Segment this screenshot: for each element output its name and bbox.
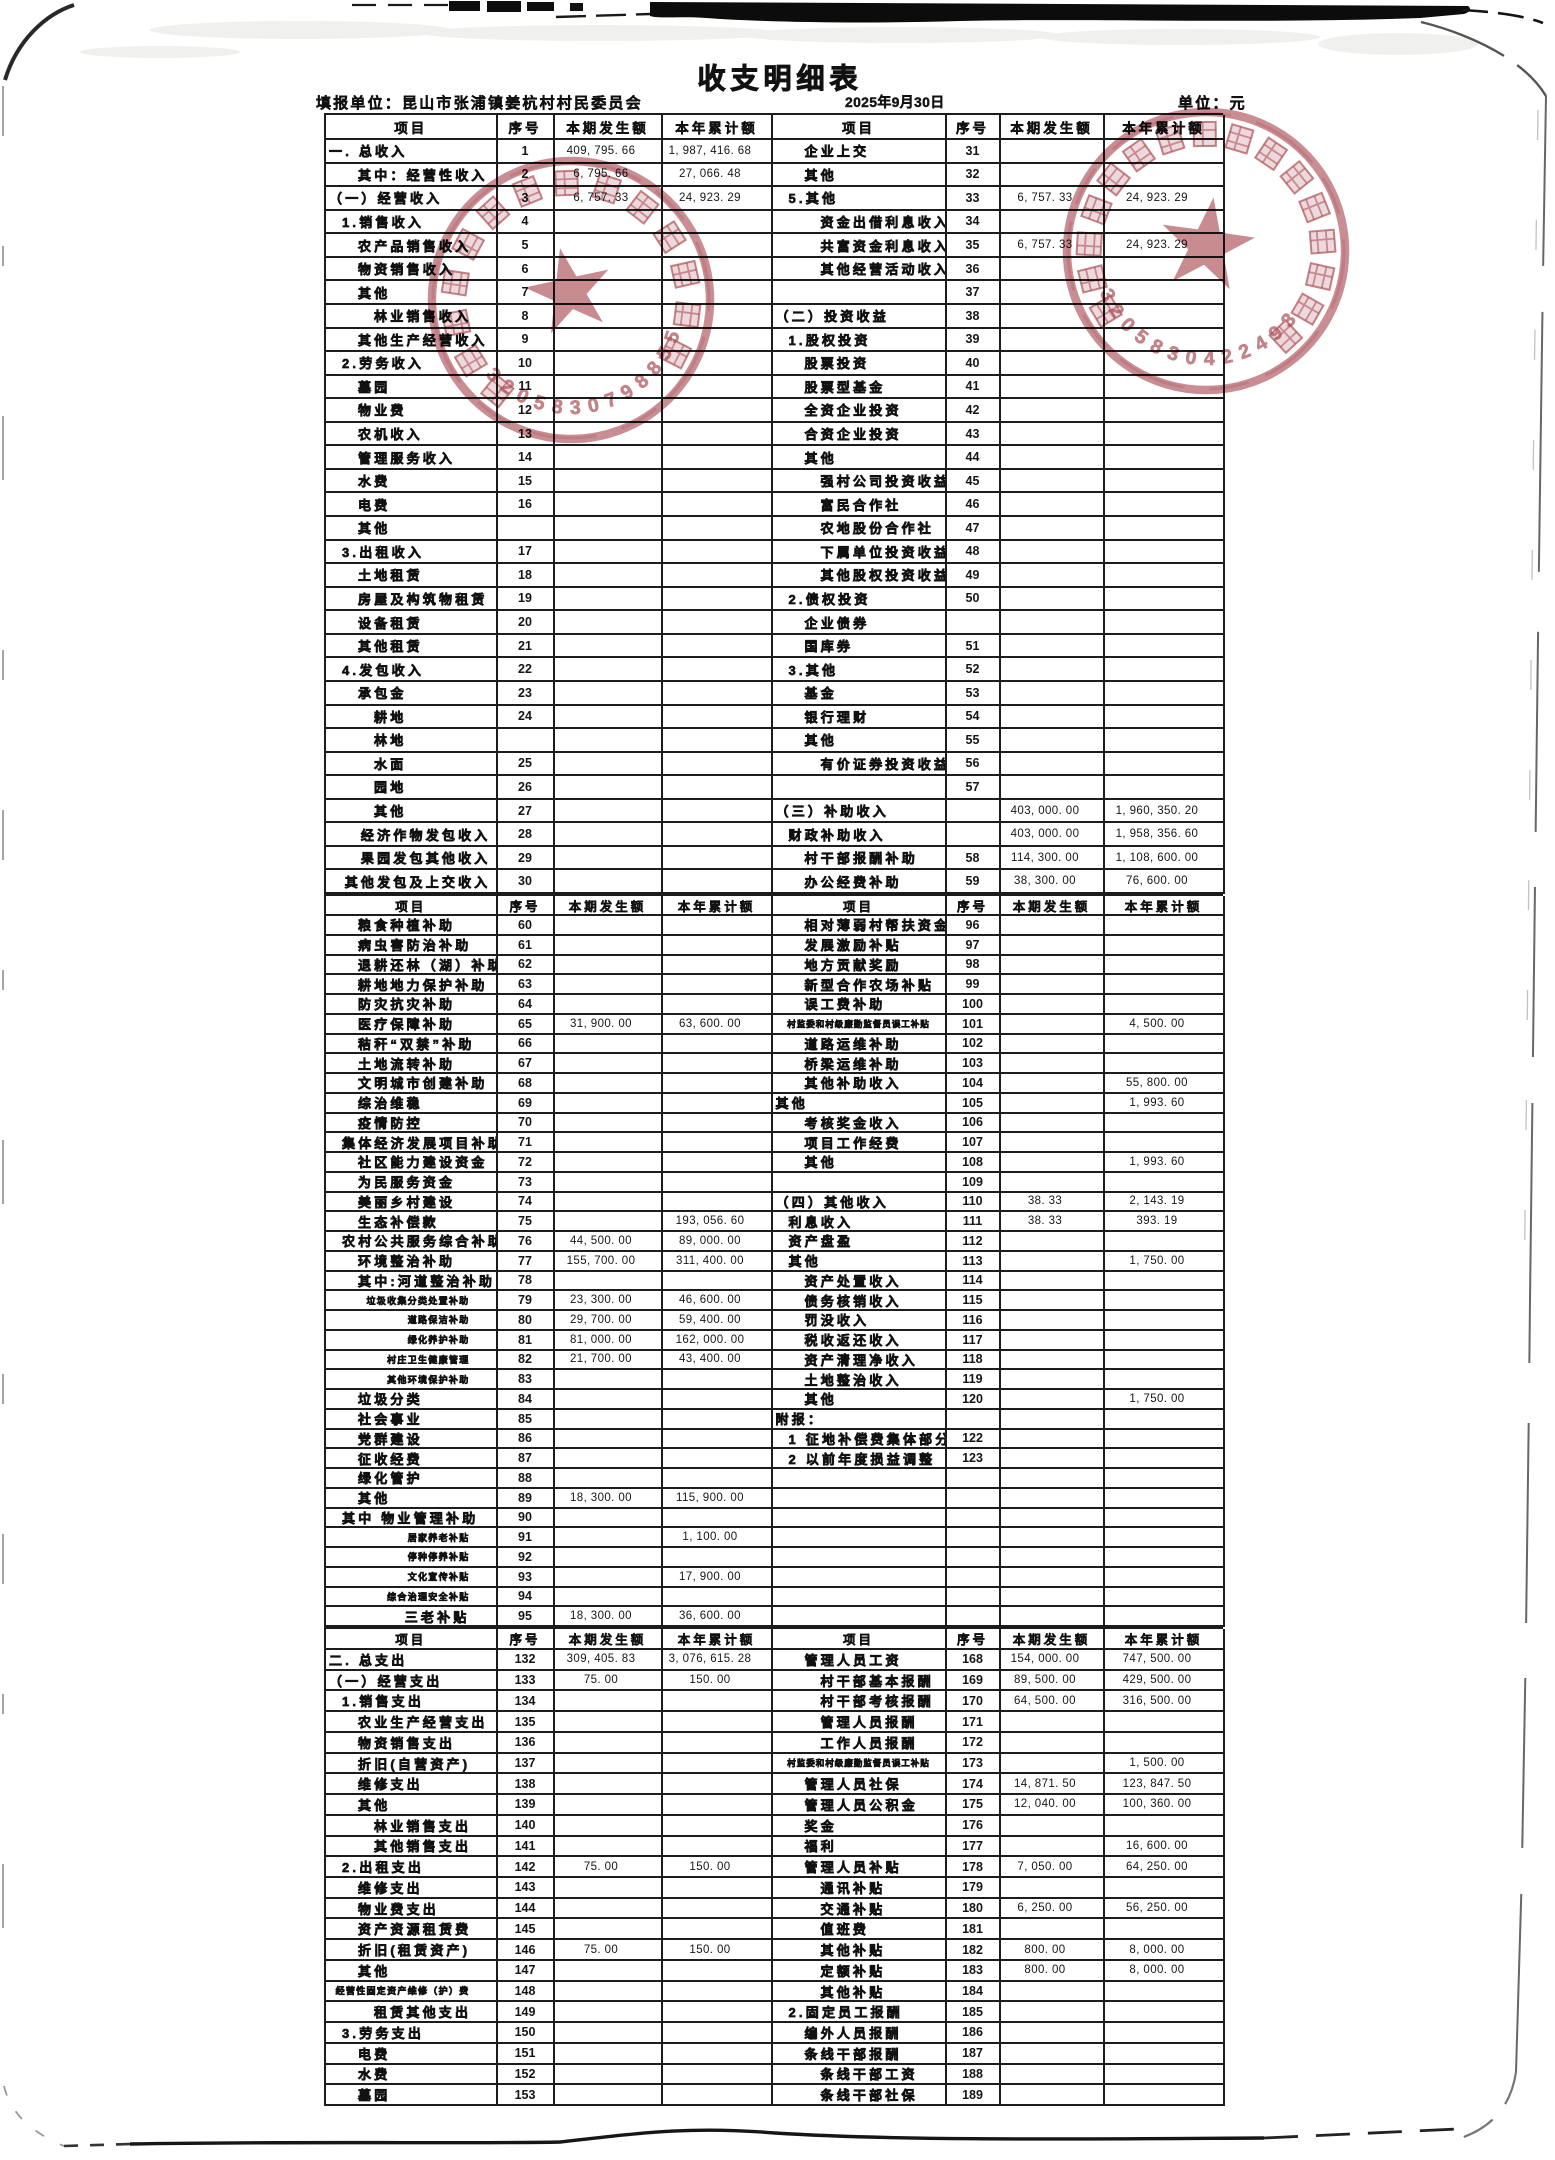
svg-text:4: 4 — [1203, 348, 1215, 370]
svg-text:7: 7 — [602, 388, 620, 412]
svg-text:0: 0 — [586, 394, 601, 418]
svg-text:0: 0 — [513, 384, 533, 409]
svg-text:0: 0 — [1184, 346, 1198, 369]
svg-text:8: 8 — [1147, 335, 1167, 360]
svg-text:5: 5 — [660, 328, 684, 346]
svg-text:9: 9 — [617, 380, 638, 405]
svg-text:5: 5 — [1130, 325, 1152, 349]
svg-text:3: 3 — [569, 397, 581, 419]
svg-text:5: 5 — [531, 391, 548, 415]
svg-text:8: 8 — [550, 396, 564, 419]
svg-text:2: 2 — [1236, 340, 1254, 364]
svg-text:3: 3 — [1165, 342, 1182, 366]
svg-text:8: 8 — [631, 370, 654, 394]
svg-text:2: 2 — [1220, 345, 1235, 369]
svg-text:8: 8 — [643, 357, 667, 379]
